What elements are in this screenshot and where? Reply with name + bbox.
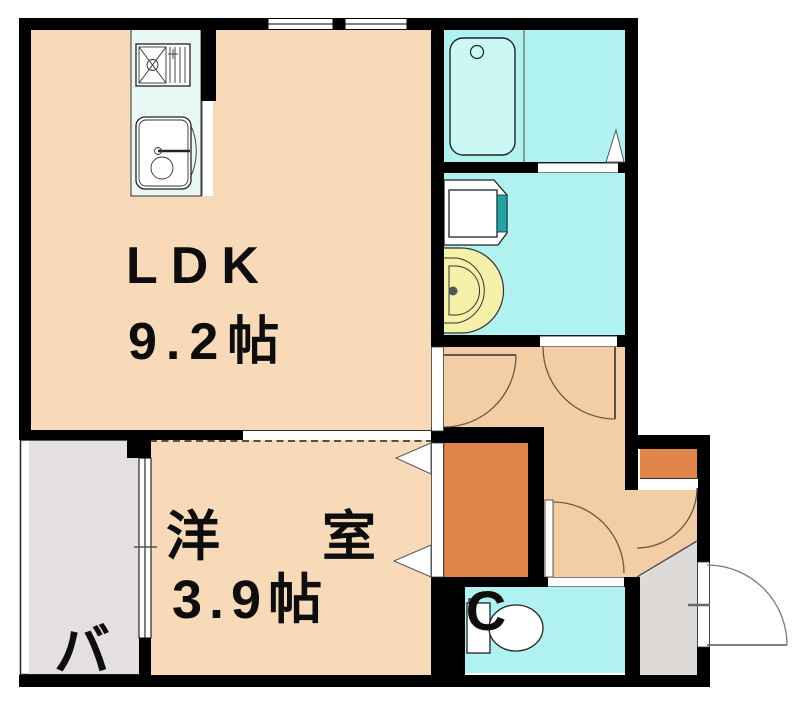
floor-plan-drawing	[0, 0, 800, 703]
outer-wall-right-upper	[625, 18, 638, 490]
opening-storage	[640, 478, 698, 488]
outer-wall-left	[19, 18, 31, 440]
kitchen-sink-icon	[136, 117, 196, 189]
western-room-size-label: 3.9帖	[172, 555, 329, 634]
opening-toilet	[548, 578, 624, 587]
washing-machine-pan-icon	[444, 180, 507, 245]
door-leaf-toilet	[545, 500, 553, 577]
wall-stub-below-window	[139, 638, 151, 675]
ldk-size-label: 9.2帖	[128, 299, 288, 374]
opening-ldk-western	[243, 430, 431, 440]
kitchen-pass-through	[202, 101, 213, 196]
door-arc-entrance	[707, 565, 787, 645]
window-top-1	[268, 19, 333, 30]
outer-wall-bottom	[19, 675, 710, 687]
kitchen-wall-stub	[201, 18, 216, 101]
opening-ldk-hall	[432, 347, 444, 431]
room-hall-floor-upper	[444, 347, 625, 432]
opening-washroom	[540, 336, 617, 347]
wall-toilet-right	[625, 577, 640, 675]
ldk-label: LDK	[126, 236, 272, 296]
opening-closet	[432, 443, 444, 577]
storage-box-floor	[640, 449, 698, 478]
window-top-2	[345, 19, 407, 30]
opening-bathroom	[538, 163, 618, 173]
wall-balcony-junction	[127, 430, 151, 458]
balcony-label: バ ル	[46, 466, 118, 703]
wall-closet-right	[528, 430, 544, 587]
room-hall-floor-mid	[544, 432, 625, 577]
wall-ldk-bath-column	[431, 30, 444, 347]
closet-label: C L	[443, 436, 529, 703]
bathtub-icon	[450, 38, 515, 155]
gas-stove-icon	[136, 44, 190, 86]
outer-wall-right-lower	[697, 435, 710, 687]
floor-plan: LDK 9.2帖 洋 室 3.9帖 C L バ ル	[0, 0, 800, 703]
